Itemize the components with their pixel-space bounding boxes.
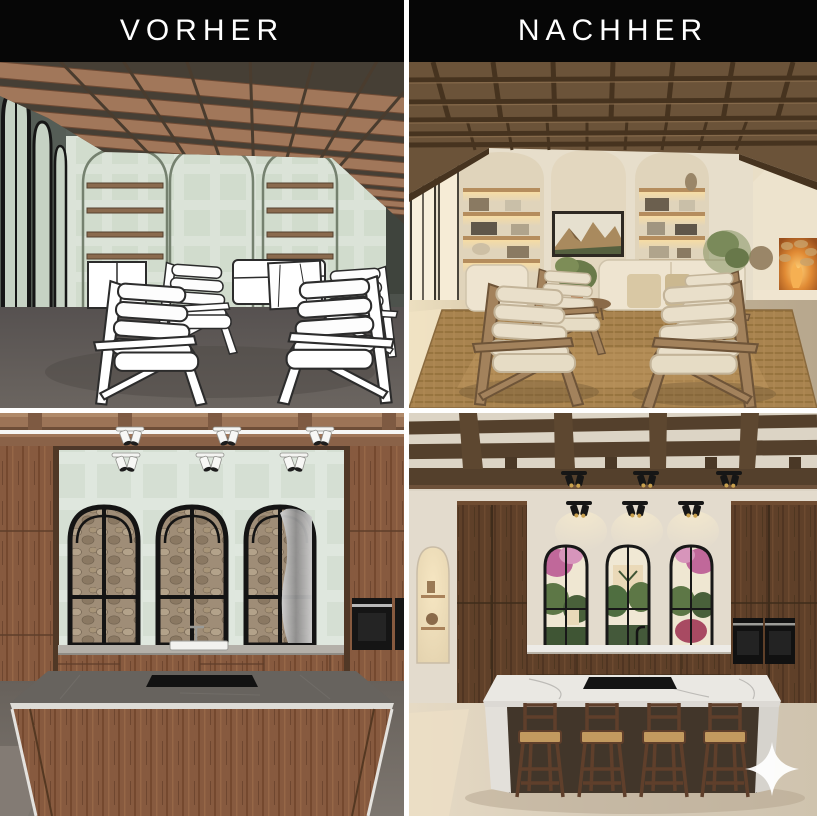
sparkle-icon — [744, 741, 800, 797]
living-room-render-scene — [409, 62, 817, 408]
draft-island — [10, 671, 394, 816]
panel-after-living-room: NACHHER — [409, 0, 817, 408]
render-cooktop — [583, 677, 677, 689]
draft-kitchen-beams — [0, 413, 404, 446]
panel-before-kitchen — [0, 413, 404, 816]
tv-mountain-art — [552, 211, 624, 257]
render-garden-windows — [537, 546, 716, 645]
draft-cooktop — [146, 675, 258, 687]
kitchen-draft-scene — [0, 413, 404, 816]
draft-ovens — [352, 598, 404, 650]
before-label: VORHER — [120, 16, 284, 46]
render-wall-niche — [417, 547, 449, 663]
render-kitchen-ceiling — [409, 413, 817, 491]
draft-kitchen-windows — [70, 507, 314, 645]
after-label-bar: NACHHER — [409, 0, 817, 62]
before-label-bar: VORHER — [0, 0, 404, 62]
living-room-draft-scene — [0, 62, 404, 408]
after-label: NACHHER — [518, 16, 708, 46]
panel-before-living-room: VORHER — [0, 0, 404, 408]
before-after-collage: VORHER — [0, 0, 817, 816]
